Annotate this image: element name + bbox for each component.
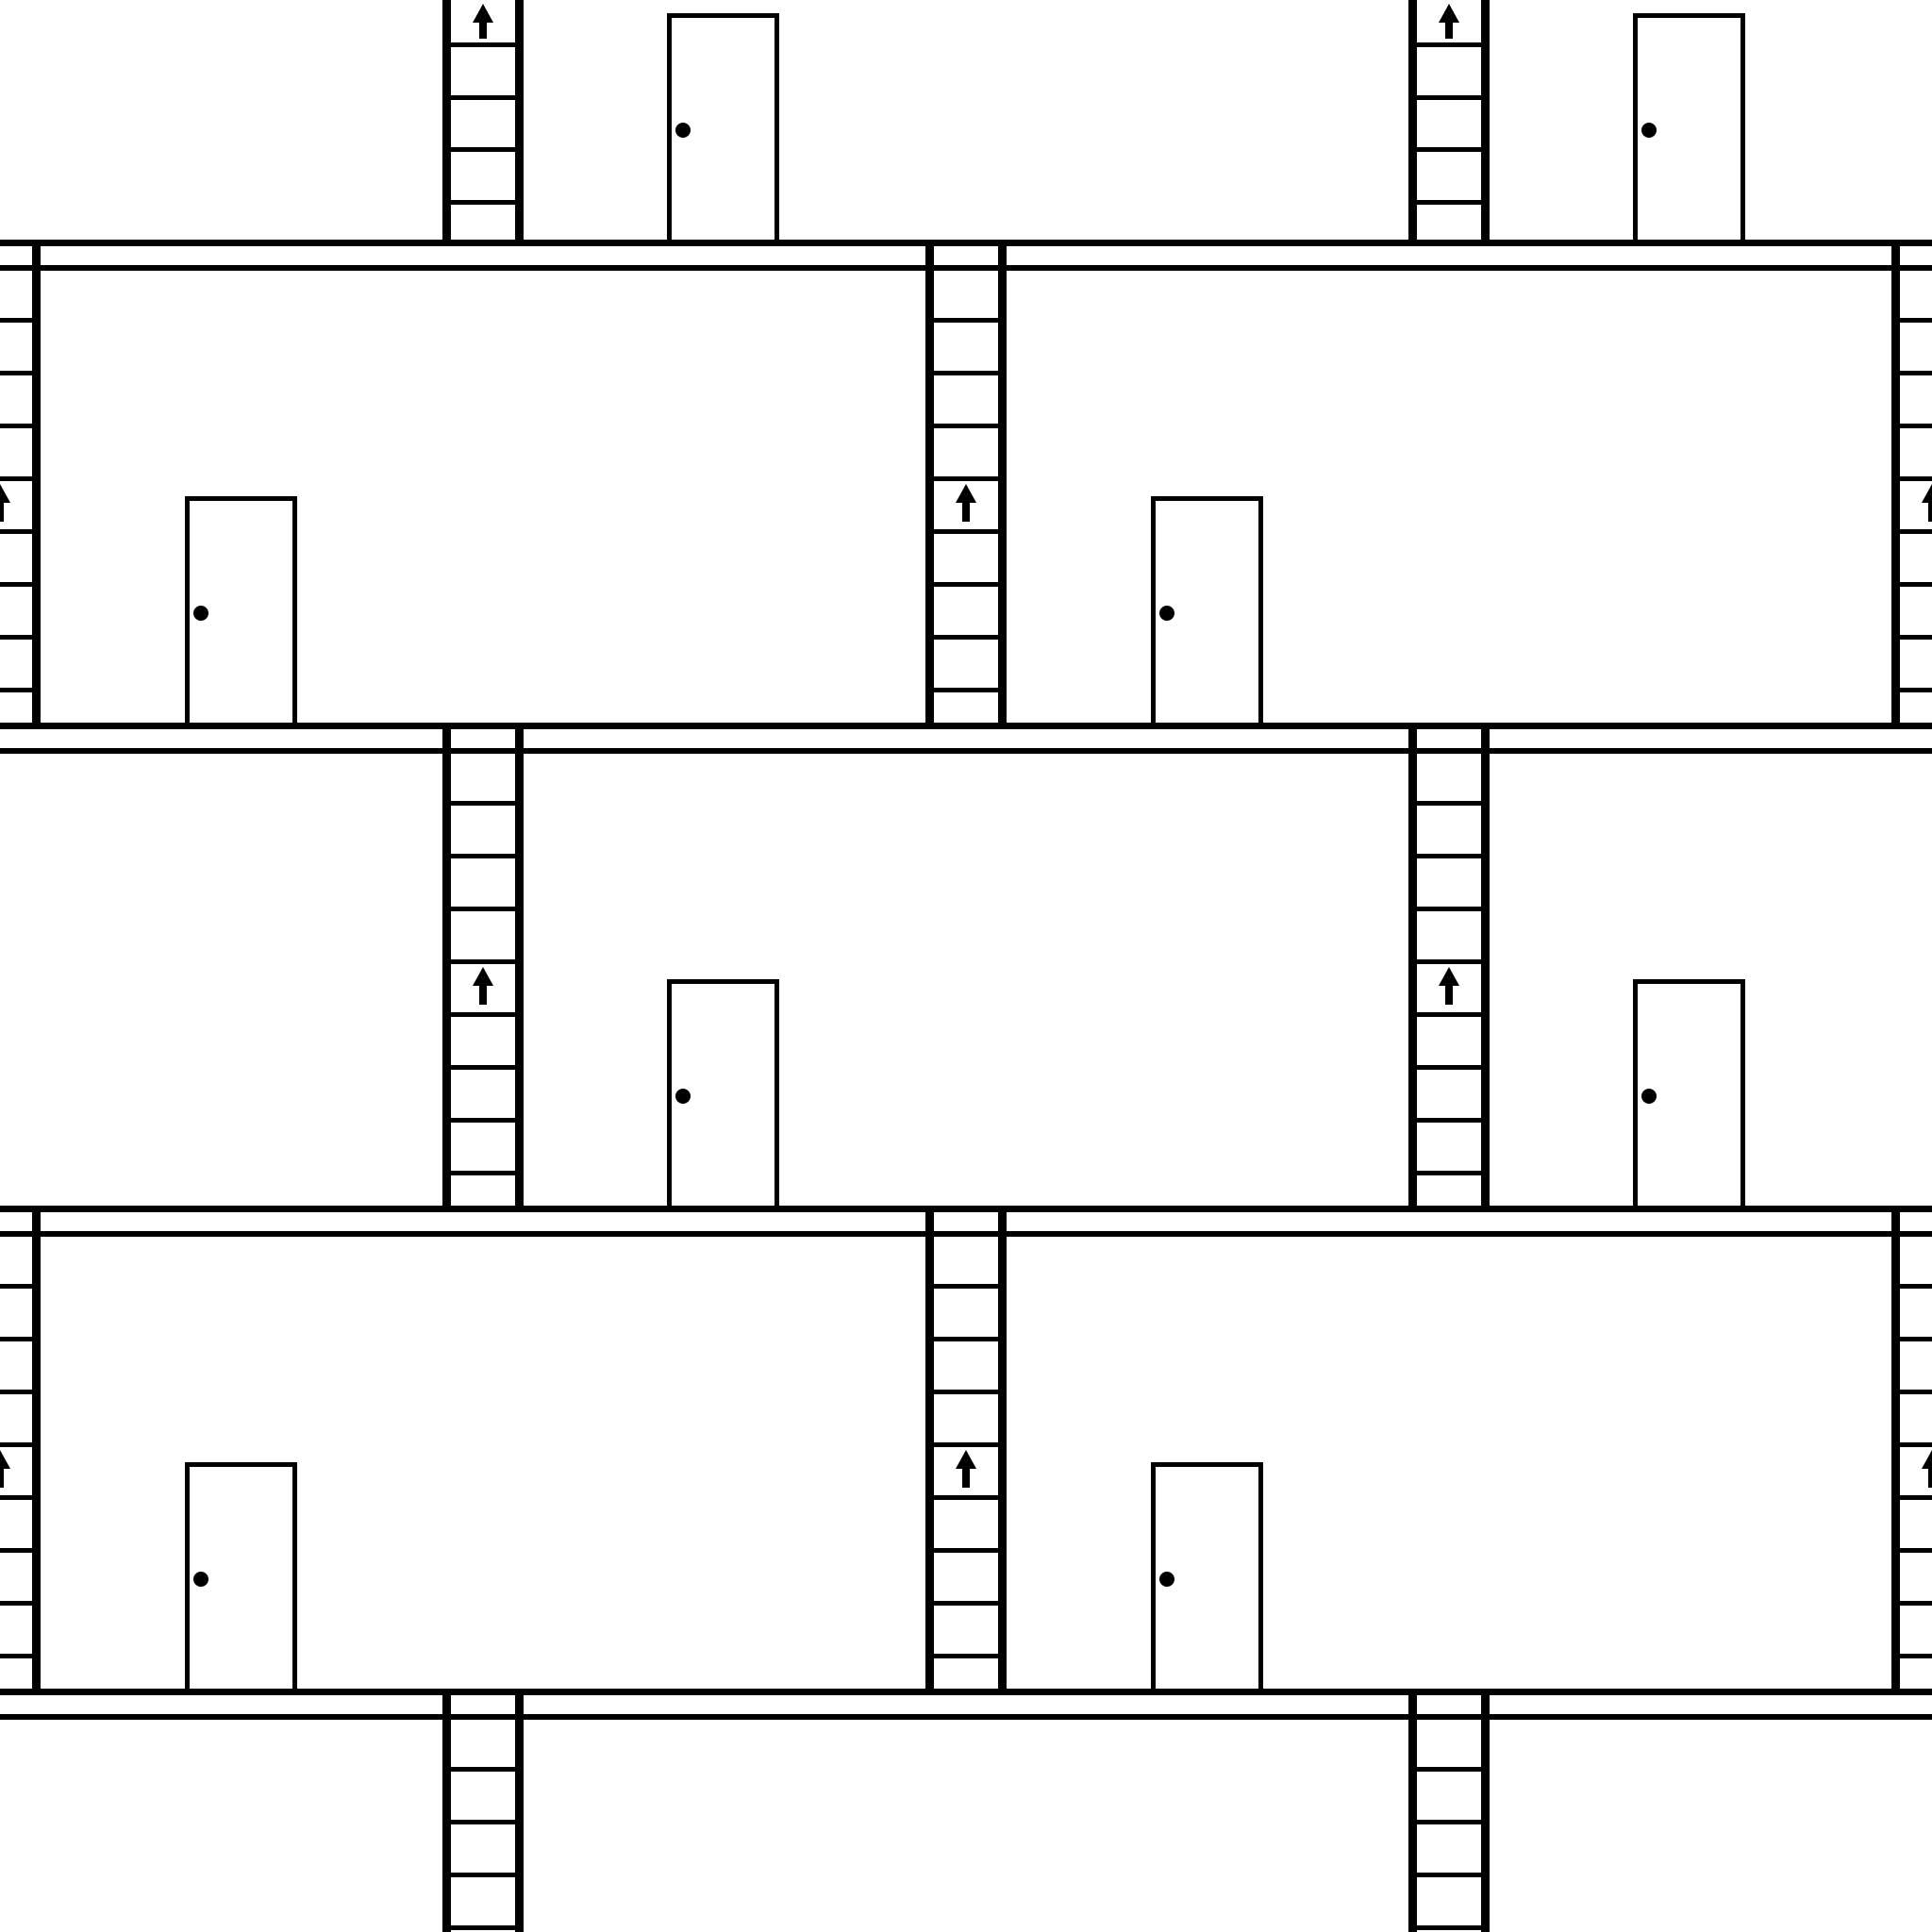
ladder-rung	[934, 1390, 998, 1394]
door-roof-left[interactable]	[667, 13, 779, 240]
ladder-rung	[451, 95, 515, 100]
ladder-rail-left	[1891, 1206, 1900, 1689]
ladder-rung	[934, 529, 998, 534]
up-arrow-icon	[1922, 1450, 1932, 1488]
ladder-rung	[0, 1654, 32, 1658]
ladder-rung	[1417, 1767, 1481, 1772]
door-floor4-left[interactable]	[185, 1462, 297, 1689]
ladder-rung	[934, 476, 998, 481]
ladder-rail-right	[998, 1206, 1007, 1689]
ladder-roof-left[interactable]	[442, 0, 524, 240]
up-arrow-icon	[1439, 4, 1459, 39]
ladder-rung	[451, 1925, 515, 1930]
ladder-floor3-right[interactable]	[1408, 723, 1490, 1206]
up-arrow-head	[0, 484, 10, 503]
ladder-rung	[934, 424, 998, 428]
up-arrow-icon	[0, 484, 10, 522]
up-arrow-stem	[0, 1468, 4, 1488]
up-arrow-head	[473, 967, 493, 986]
ladder-rung	[934, 1548, 998, 1553]
floor-band-3-surface-line	[0, 1206, 1932, 1212]
ladder-rail-right	[515, 1689, 524, 1932]
up-arrow-head	[1922, 1450, 1932, 1469]
door-roof-right[interactable]	[1633, 13, 1745, 240]
ladder-rung	[0, 635, 32, 640]
ladder-rung	[1900, 1284, 1932, 1289]
ladder-rung	[1417, 147, 1481, 152]
ladder-rung	[1900, 1495, 1932, 1500]
ladder-rail-left	[442, 1689, 451, 1932]
ladder-floor2-middle[interactable]	[925, 240, 1007, 723]
up-arrow-icon	[473, 4, 493, 39]
up-arrow-icon	[0, 1450, 10, 1488]
door-knob	[675, 123, 691, 138]
ladder-rung	[0, 371, 32, 375]
ladder-rung	[1417, 1820, 1481, 1824]
floor-band-4-surface-line	[0, 1689, 1932, 1695]
up-arrow-stem	[0, 502, 4, 522]
ladder-rail-right	[1481, 0, 1490, 240]
ladder-rung	[1900, 529, 1932, 534]
ladder-rung	[1900, 1601, 1932, 1606]
ladder-rung	[934, 1601, 998, 1606]
up-arrow-icon	[1439, 967, 1459, 1005]
building-map	[0, 0, 1932, 1932]
ladder-rung	[1900, 476, 1932, 481]
ladder-rung	[934, 1654, 998, 1658]
ladder-floor4-left-edge[interactable]	[0, 1206, 41, 1689]
door-knob	[1159, 606, 1174, 621]
ladder-roof-right[interactable]	[1408, 0, 1490, 240]
ladder-rail-right	[515, 0, 524, 240]
ladder-rail-right	[32, 1206, 41, 1689]
up-arrow-head	[0, 1450, 10, 1469]
door-knob	[675, 1089, 691, 1104]
ladder-rung	[1900, 424, 1932, 428]
ladder-rung	[0, 582, 32, 587]
ladder-rung	[934, 688, 998, 692]
ladder-rung	[451, 854, 515, 858]
ladder-rung	[0, 688, 32, 692]
ladder-rung	[1900, 1548, 1932, 1553]
ladder-rung	[0, 1601, 32, 1606]
ladder-rung	[1417, 907, 1481, 911]
ladder-rung	[1417, 1065, 1481, 1070]
ladder-rung	[0, 1495, 32, 1500]
up-arrow-head	[1439, 967, 1459, 986]
up-arrow-head	[473, 4, 493, 23]
ladder-rung	[934, 582, 998, 587]
floor-band-4-ceiling-line	[0, 1714, 1932, 1720]
ladder-rung	[1417, 959, 1481, 964]
ladder-rail-left	[1408, 1689, 1417, 1932]
ladder-rung	[0, 318, 32, 323]
ladder-rung	[451, 1171, 515, 1175]
ladder-rail-right	[998, 240, 1007, 723]
ladder-rung	[1417, 1925, 1481, 1930]
ladder-floor2-left-edge[interactable]	[0, 240, 41, 723]
ladder-rail-right	[515, 723, 524, 1206]
door-knob	[1641, 123, 1657, 138]
ladder-rung	[934, 1442, 998, 1447]
ladder-rung	[451, 1820, 515, 1824]
ladder-rung	[1417, 801, 1481, 806]
ladder-rung	[934, 1495, 998, 1500]
ladder-rung	[1900, 371, 1932, 375]
ladder-rail-right	[1481, 1689, 1490, 1932]
ladder-rail-left	[925, 240, 934, 723]
ladder-rung	[1417, 200, 1481, 205]
up-arrow-stem	[962, 1468, 970, 1488]
floor-band-1-surface-line	[0, 240, 1932, 246]
ladder-rung	[451, 907, 515, 911]
door-knob	[193, 1572, 208, 1587]
ladder-rung	[1900, 318, 1932, 323]
ladder-rung	[451, 42, 515, 47]
ladder-bottom-left[interactable]	[442, 1689, 524, 1932]
floor-band-2-ceiling-line	[0, 748, 1932, 754]
ladder-rung	[934, 318, 998, 323]
ladder-rung	[934, 1284, 998, 1289]
ladder-rung	[451, 959, 515, 964]
ladder-rung	[451, 200, 515, 205]
ladder-rung	[1417, 1171, 1481, 1175]
up-arrow-icon	[1922, 484, 1932, 522]
ladder-rung	[1900, 582, 1932, 587]
floor-band-1-ceiling-line	[0, 265, 1932, 271]
ladder-rung	[451, 1767, 515, 1772]
door-floor2-right[interactable]	[1151, 496, 1263, 723]
up-arrow-head	[1439, 4, 1459, 23]
up-arrow-stem	[1445, 985, 1453, 1005]
up-arrow-stem	[962, 502, 970, 522]
ladder-rail-right	[1481, 723, 1490, 1206]
ladder-rail-left	[442, 0, 451, 240]
ladder-rung	[0, 529, 32, 534]
ladder-rung	[1417, 1118, 1481, 1123]
door-knob	[1641, 1089, 1657, 1104]
ladder-rung	[0, 1284, 32, 1289]
ladder-rail-right	[32, 240, 41, 723]
up-arrow-icon	[473, 967, 493, 1005]
ladder-rung	[451, 1012, 515, 1017]
door-floor3-left[interactable]	[667, 979, 779, 1206]
ladder-rung	[934, 1337, 998, 1341]
ladder-rung	[451, 1118, 515, 1123]
ladder-rung	[451, 147, 515, 152]
ladder-rung	[1417, 42, 1481, 47]
ladder-floor4-middle[interactable]	[925, 1206, 1007, 1689]
ladder-bottom-right[interactable]	[1408, 1689, 1490, 1932]
ladder-rung	[1900, 635, 1932, 640]
ladder-rail-left	[925, 1206, 934, 1689]
up-arrow-stem	[1445, 22, 1453, 39]
ladder-rail-left	[1408, 723, 1417, 1206]
ladder-rung	[0, 424, 32, 428]
floor-band-2-surface-line	[0, 723, 1932, 729]
floor-band-3-ceiling-line	[0, 1231, 1932, 1237]
ladder-rail-left	[442, 723, 451, 1206]
up-arrow-stem	[1928, 1468, 1932, 1488]
ladder-rung	[1417, 1012, 1481, 1017]
ladder-rung	[0, 1390, 32, 1394]
ladder-rung	[1900, 688, 1932, 692]
ladder-rung	[0, 1337, 32, 1341]
ladder-floor3-left[interactable]	[442, 723, 524, 1206]
door-knob	[1159, 1572, 1174, 1587]
up-arrow-stem	[1928, 502, 1932, 522]
ladder-rung	[451, 801, 515, 806]
ladder-rung	[0, 1442, 32, 1447]
up-arrow-icon	[956, 1450, 976, 1488]
ladder-rung	[934, 371, 998, 375]
ladder-rung	[1417, 854, 1481, 858]
ladder-rail-left	[1891, 240, 1900, 723]
ladder-rung	[451, 1065, 515, 1070]
ladder-rung	[934, 635, 998, 640]
up-arrow-head	[956, 1450, 976, 1469]
ladder-rung	[1417, 95, 1481, 100]
ladder-rail-left	[1408, 0, 1417, 240]
up-arrow-stem	[479, 22, 487, 39]
ladder-rung	[1417, 1873, 1481, 1877]
up-arrow-head	[1922, 484, 1932, 503]
ladder-floor4-right-edge[interactable]	[1891, 1206, 1932, 1689]
ladder-rung	[1900, 1654, 1932, 1658]
door-floor2-left[interactable]	[185, 496, 297, 723]
ladder-rung	[451, 1873, 515, 1877]
door-floor4-right[interactable]	[1151, 1462, 1263, 1689]
ladder-rung	[1900, 1390, 1932, 1394]
door-knob	[193, 606, 208, 621]
ladder-floor2-right-edge[interactable]	[1891, 240, 1932, 723]
ladder-rung	[0, 476, 32, 481]
ladder-rung	[1900, 1337, 1932, 1341]
ladder-rung	[1900, 1442, 1932, 1447]
door-floor3-right[interactable]	[1633, 979, 1745, 1206]
ladder-rung	[0, 1548, 32, 1553]
up-arrow-head	[956, 484, 976, 503]
up-arrow-stem	[479, 985, 487, 1005]
up-arrow-icon	[956, 484, 976, 522]
